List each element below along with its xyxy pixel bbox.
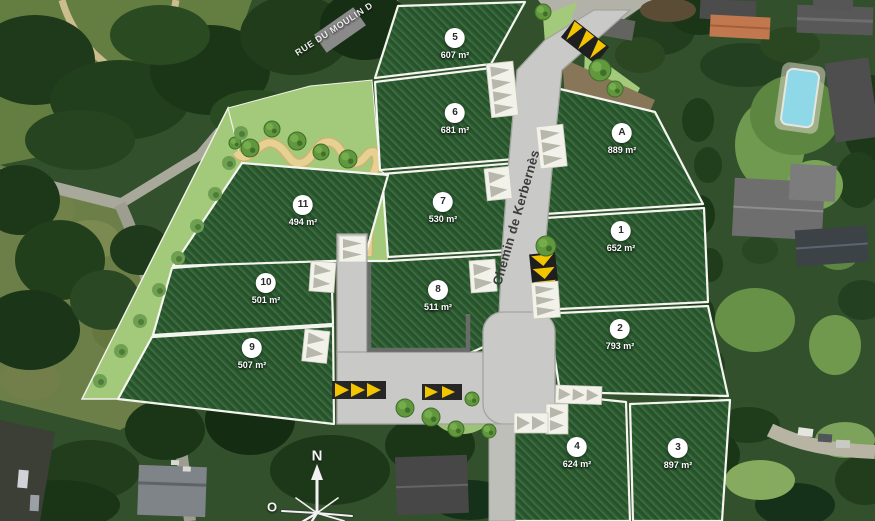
hedge-strip (555, 385, 602, 405)
turnaround-road (483, 312, 555, 424)
hedge-strip (531, 281, 560, 319)
tree (448, 421, 464, 437)
tree (607, 81, 623, 97)
speed-bump (332, 381, 386, 399)
bush (133, 314, 147, 328)
bush (114, 344, 128, 358)
bush (171, 251, 185, 265)
parked-truck (30, 495, 40, 511)
bush (190, 219, 204, 233)
tree (288, 132, 306, 150)
bush (152, 283, 166, 297)
tree (482, 424, 496, 438)
hedge-strip (469, 259, 497, 293)
building-roof (137, 459, 207, 517)
bush (208, 187, 222, 201)
house-roof-solar (795, 226, 869, 267)
house-roof (395, 455, 469, 515)
tree (264, 121, 280, 137)
tree (535, 4, 551, 20)
south-lane (489, 424, 515, 521)
bush (93, 374, 107, 388)
hedge-strip (484, 166, 512, 200)
tree (589, 59, 611, 81)
hedge-strip (339, 236, 366, 262)
lot-parcel-3 (630, 400, 730, 521)
tree (339, 150, 357, 168)
hedge-strip (309, 261, 336, 293)
hedge-strip (536, 124, 567, 169)
lot-parcel-2 (538, 306, 728, 396)
site-plan-map: Chemin de Kerbernès RUE DU MOULIN D N O … (0, 0, 875, 521)
parked-truck (17, 470, 29, 489)
speed-bump (422, 384, 462, 400)
tree (396, 399, 414, 417)
tree (465, 392, 479, 406)
lot-parcel-1 (538, 208, 708, 310)
hedge-strip (546, 404, 568, 434)
hedge-strip (302, 329, 330, 363)
house-roof (813, 0, 853, 11)
bush (222, 156, 236, 170)
swimming-pool (773, 61, 826, 134)
tree (536, 236, 556, 256)
hedge-strip (514, 413, 548, 433)
lot-parcel-10 (153, 256, 333, 335)
hedge-strip (486, 61, 518, 118)
house-roof-orange (709, 14, 770, 39)
map-graphics (0, 0, 875, 521)
tree (422, 408, 440, 426)
bush (234, 126, 248, 140)
tree (241, 139, 259, 157)
tree (313, 144, 329, 160)
